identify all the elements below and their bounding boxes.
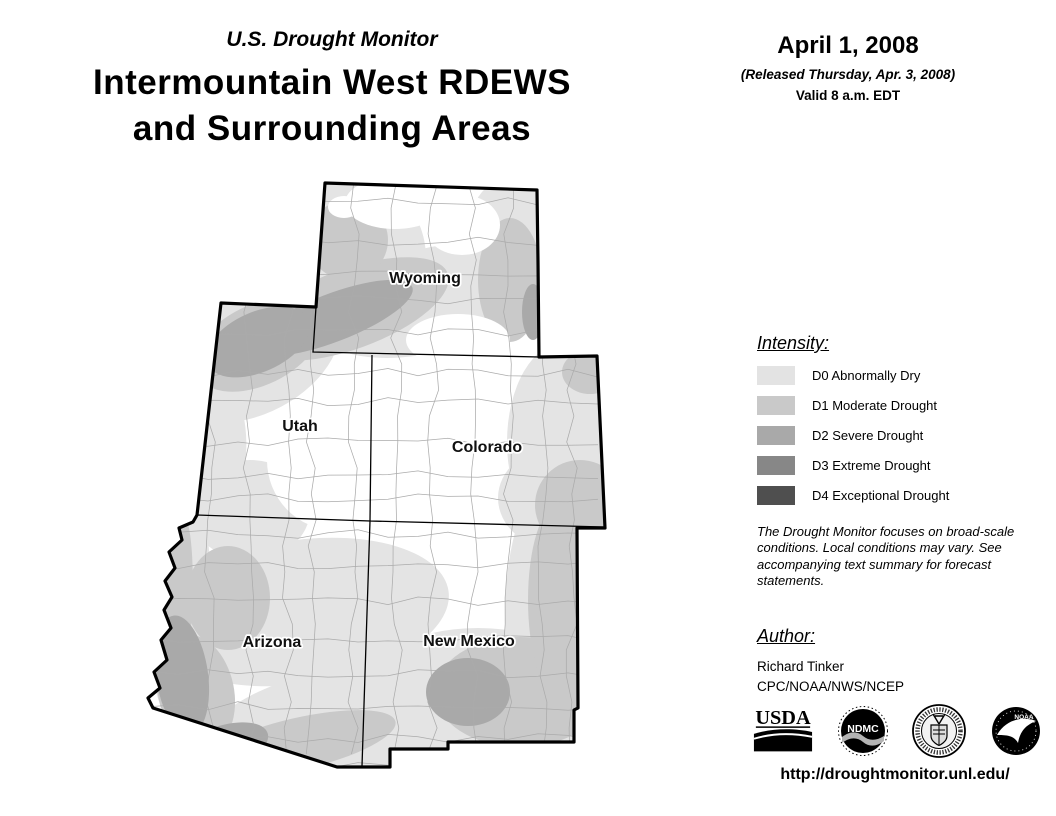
legend-item-d1: D1 Moderate Drought [757,396,1037,415]
author-org: CPC/NOAA/NWS/NCEP [757,679,1017,694]
page-title-line1: Intermountain West RDEWS [8,60,656,106]
author-block: Author: Richard Tinker CPC/NOAA/NWS/NCEP [757,626,1017,694]
usda-logo-icon: USDA [752,707,814,755]
legend-swatch-d1 [757,396,795,415]
drought-region-none [267,390,403,530]
page-title: Intermountain West RDEWS and Surrounding… [8,60,656,152]
author-heading: Author: [757,626,1017,647]
legend-swatch-d4 [757,486,795,505]
legend-heading: Intensity: [757,333,1037,354]
legend-swatch-d0 [757,366,795,385]
ndmc-logo-icon: NDMC [837,705,889,757]
drought-region-d1 [535,460,625,550]
date-block: April 1, 2008 (Released Thursday, Apr. 3… [700,32,996,103]
drought-region-d2 [522,284,544,340]
state-label-wyoming: Wyoming [389,270,461,287]
legend-label-d4: D4 Exceptional Drought [812,488,949,503]
drought-region-none [406,314,510,366]
legend-label-d2: D2 Severe Drought [812,428,923,443]
valid-time: Valid 8 a.m. EDT [700,88,996,103]
state-label-utah: Utah [282,418,318,435]
legend-item-d3: D3 Extreme Drought [757,456,1037,475]
legend-item-d4: D4 Exceptional Drought [757,486,1037,505]
state-label-colorado: Colorado [452,439,522,456]
disclaimer-text: The Drought Monitor focuses on broad-sca… [757,524,1023,590]
drought-region-d2 [426,658,510,726]
legend-swatch-d2 [757,426,795,445]
report-kicker: U.S. Drought Monitor [20,28,644,52]
legend-label-d1: D1 Moderate Drought [812,398,937,413]
agency-logos: USDA NDMC NOAA [752,702,1042,760]
state-label-arizona: Arizona [243,634,302,651]
drought-region-none [328,196,360,218]
noaa-logo-icon: NOAA [990,705,1042,757]
legend-label-d3: D3 Extreme Drought [812,458,931,473]
legend-label-d0: D0 Abnormally Dry [812,368,920,383]
legend-item-d0: D0 Abnormally Dry [757,366,1037,385]
drought-monitor-page: WyomingUtahColoradoArizonaNew Mexico U.S… [0,0,1056,816]
drought-monitor-url: http://droughtmonitor.unl.edu/ [728,766,1056,784]
legend-swatch-d3 [757,456,795,475]
released-date: (Released Thursday, Apr. 3, 2008) [700,67,996,82]
svg-text:NOAA: NOAA [1014,714,1033,721]
state-label-new-mexico: New Mexico [423,633,515,650]
map-date: April 1, 2008 [700,32,996,60]
page-title-line2: and Surrounding Areas [8,106,656,152]
legend-item-d2: D2 Severe Drought [757,426,1037,445]
intensity-legend: Intensity: D0 Abnormally Dry D1 Moderate… [757,333,1037,516]
author-name: Richard Tinker [757,659,1017,674]
svg-text:USDA: USDA [755,707,811,729]
commerce-seal-icon [911,702,967,760]
